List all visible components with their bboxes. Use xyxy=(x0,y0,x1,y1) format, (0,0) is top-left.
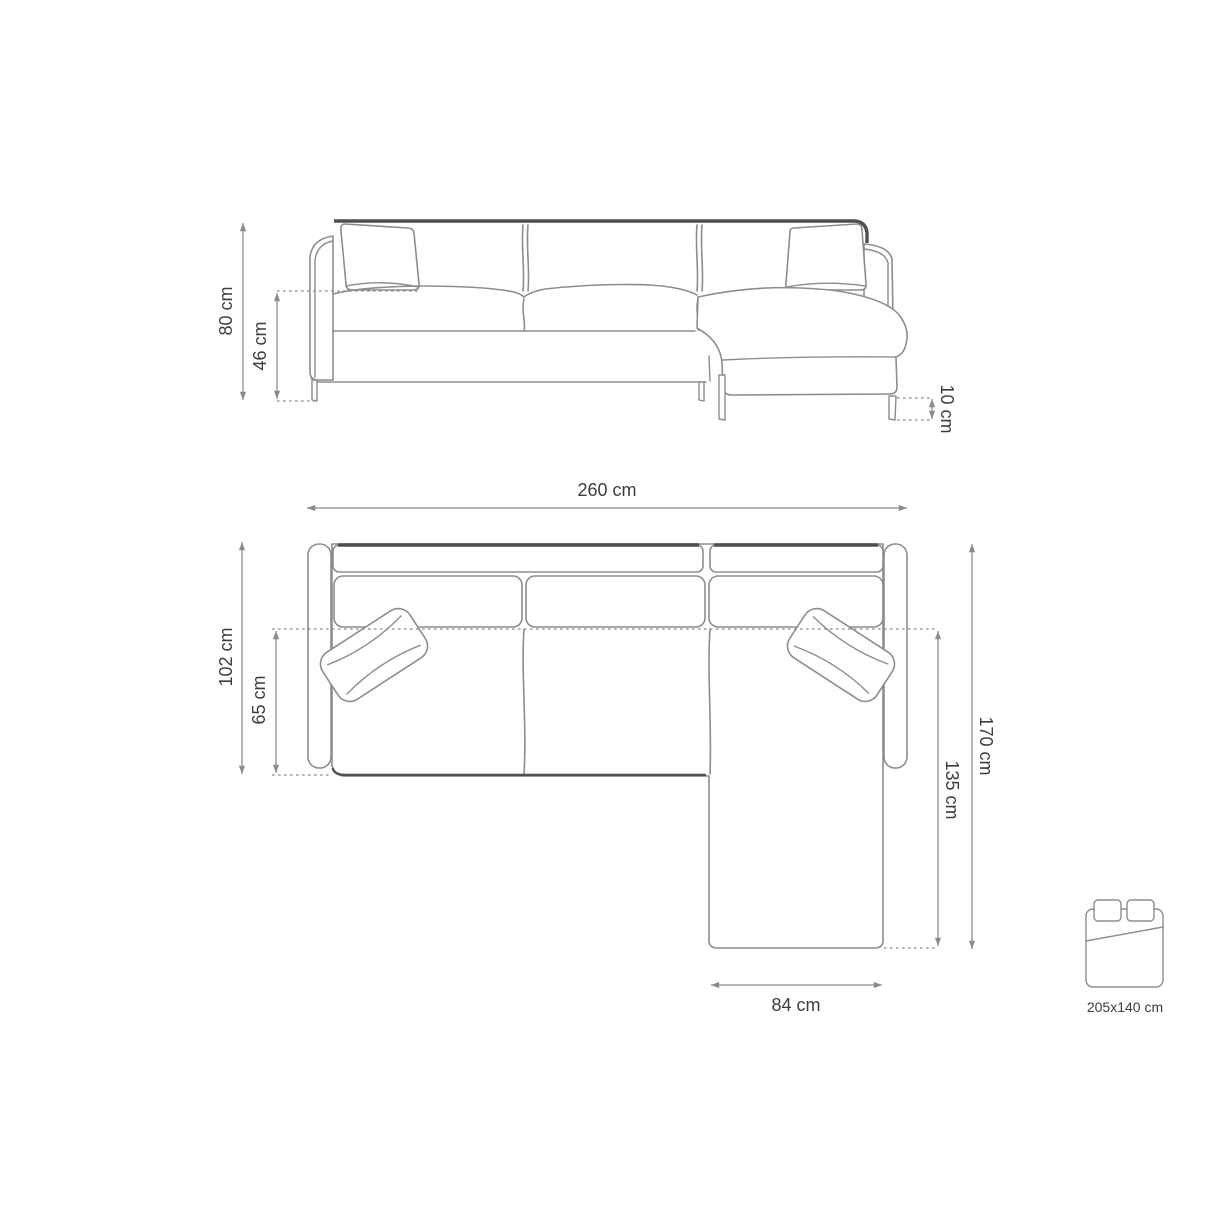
sofa-dimension-diagram: 80 cm 46 cm 10 cm xyxy=(0,0,1214,1214)
double-bed-icon xyxy=(1086,900,1163,987)
front-view: 80 cm 46 cm 10 cm xyxy=(216,221,957,434)
front-right-pillow xyxy=(786,224,866,290)
top-back-cushion-middle xyxy=(526,576,705,627)
dim-seat-height-dotted xyxy=(277,291,420,401)
front-base-bottom xyxy=(311,377,706,382)
top-view: 260 cm 102 cm 65 cm 170 cm 135 cm 84 cm xyxy=(216,480,996,1015)
dim-overall-depth: 102 cm xyxy=(216,542,242,774)
dim-overall-depth-label: 102 cm xyxy=(216,627,236,686)
front-chaise-body xyxy=(697,288,907,395)
dim-overall-width-label: 260 cm xyxy=(577,480,636,500)
dim-chaise-width: 84 cm xyxy=(711,985,882,1015)
dim-overall-length-label: 170 cm xyxy=(976,716,996,775)
dim-leg-height-dotted xyxy=(897,398,932,420)
dim-overall-length: 170 cm xyxy=(972,544,996,949)
dim-seat-height-label: 46 cm xyxy=(250,321,270,370)
top-back-cushion-right xyxy=(709,576,883,627)
dim-leg-height: 10 cm xyxy=(897,384,957,433)
front-main-legs xyxy=(312,380,704,401)
top-backrest-band-left xyxy=(333,545,703,572)
dim-seat-height: 46 cm xyxy=(250,291,420,401)
front-base-right-edge xyxy=(709,356,710,381)
top-backrest-band-right xyxy=(710,545,883,572)
front-seat-divisions xyxy=(523,299,698,331)
bed-pillow-right xyxy=(1127,900,1154,921)
dim-overall-width: 260 cm xyxy=(307,480,907,508)
sleeping-area-label: 205x140 cm xyxy=(1087,999,1163,1015)
sleeping-area: 205x140 cm xyxy=(1086,900,1163,1015)
dim-leg-height-label: 10 cm xyxy=(937,384,957,433)
front-backrest-divisions xyxy=(522,225,702,291)
dim-seat-depth-label: 65 cm xyxy=(249,675,269,724)
bed-pillow-left xyxy=(1094,900,1121,921)
dim-overall-height: 80 cm xyxy=(216,223,243,400)
top-back-cushion-left xyxy=(334,576,522,627)
dim-overall-height-label: 80 cm xyxy=(216,286,236,335)
dim-chaise-length-label: 135 cm xyxy=(942,760,962,819)
dim-chaise-width-label: 84 cm xyxy=(771,995,820,1015)
front-left-pillow xyxy=(341,224,419,290)
front-left-armrest xyxy=(310,236,333,380)
